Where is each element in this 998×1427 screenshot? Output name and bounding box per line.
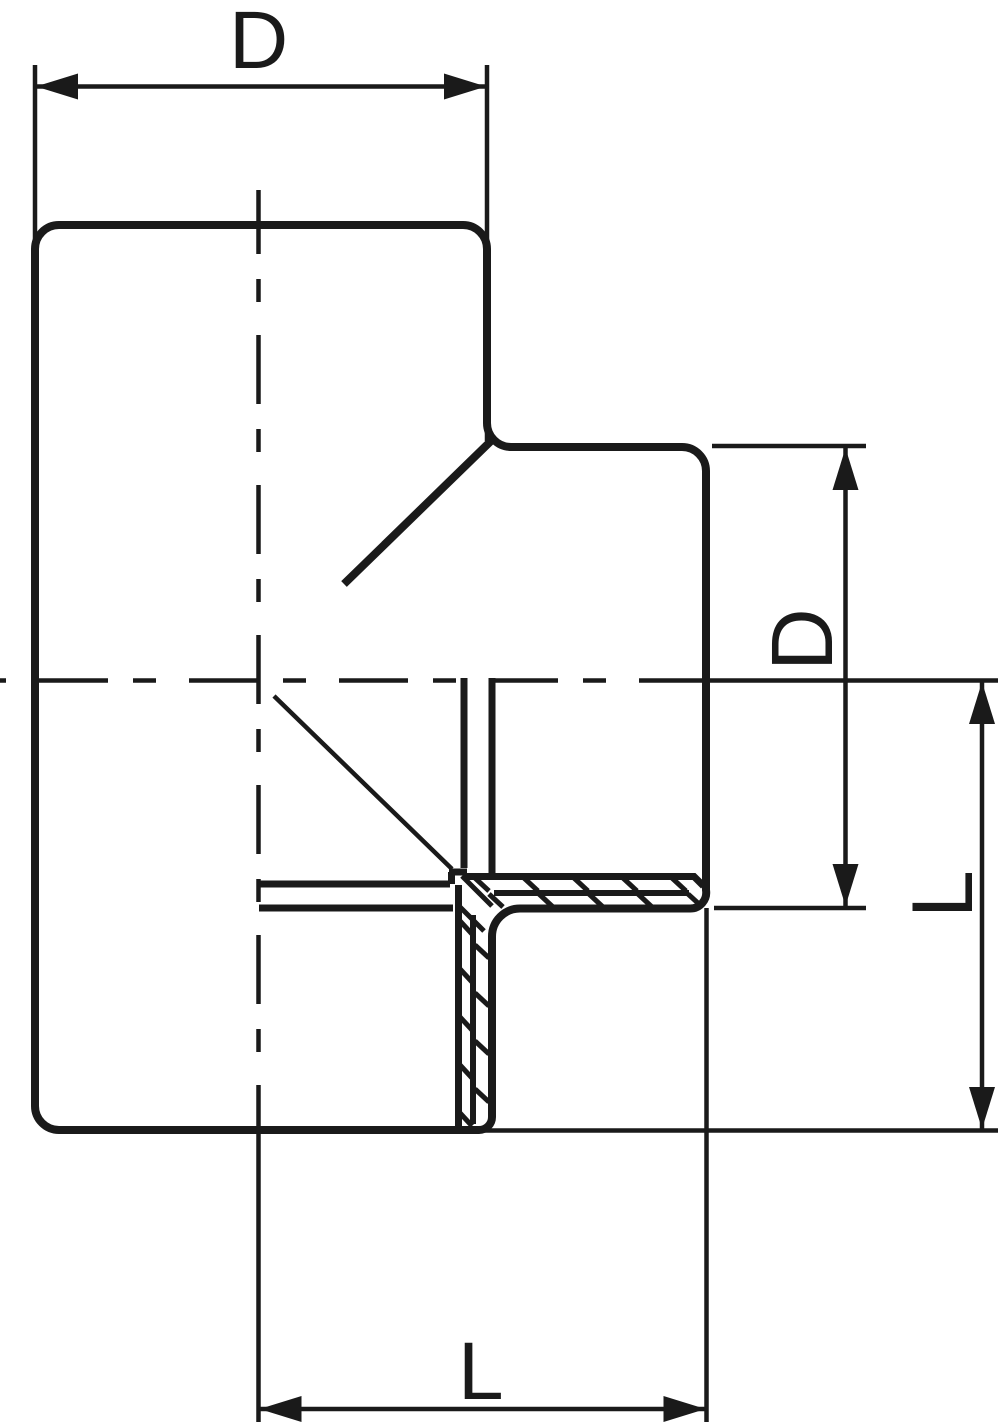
svg-text:L: L bbox=[895, 870, 991, 918]
svg-text:L: L bbox=[458, 1326, 504, 1417]
svg-text:D: D bbox=[229, 0, 288, 86]
svg-text:D: D bbox=[754, 608, 851, 671]
